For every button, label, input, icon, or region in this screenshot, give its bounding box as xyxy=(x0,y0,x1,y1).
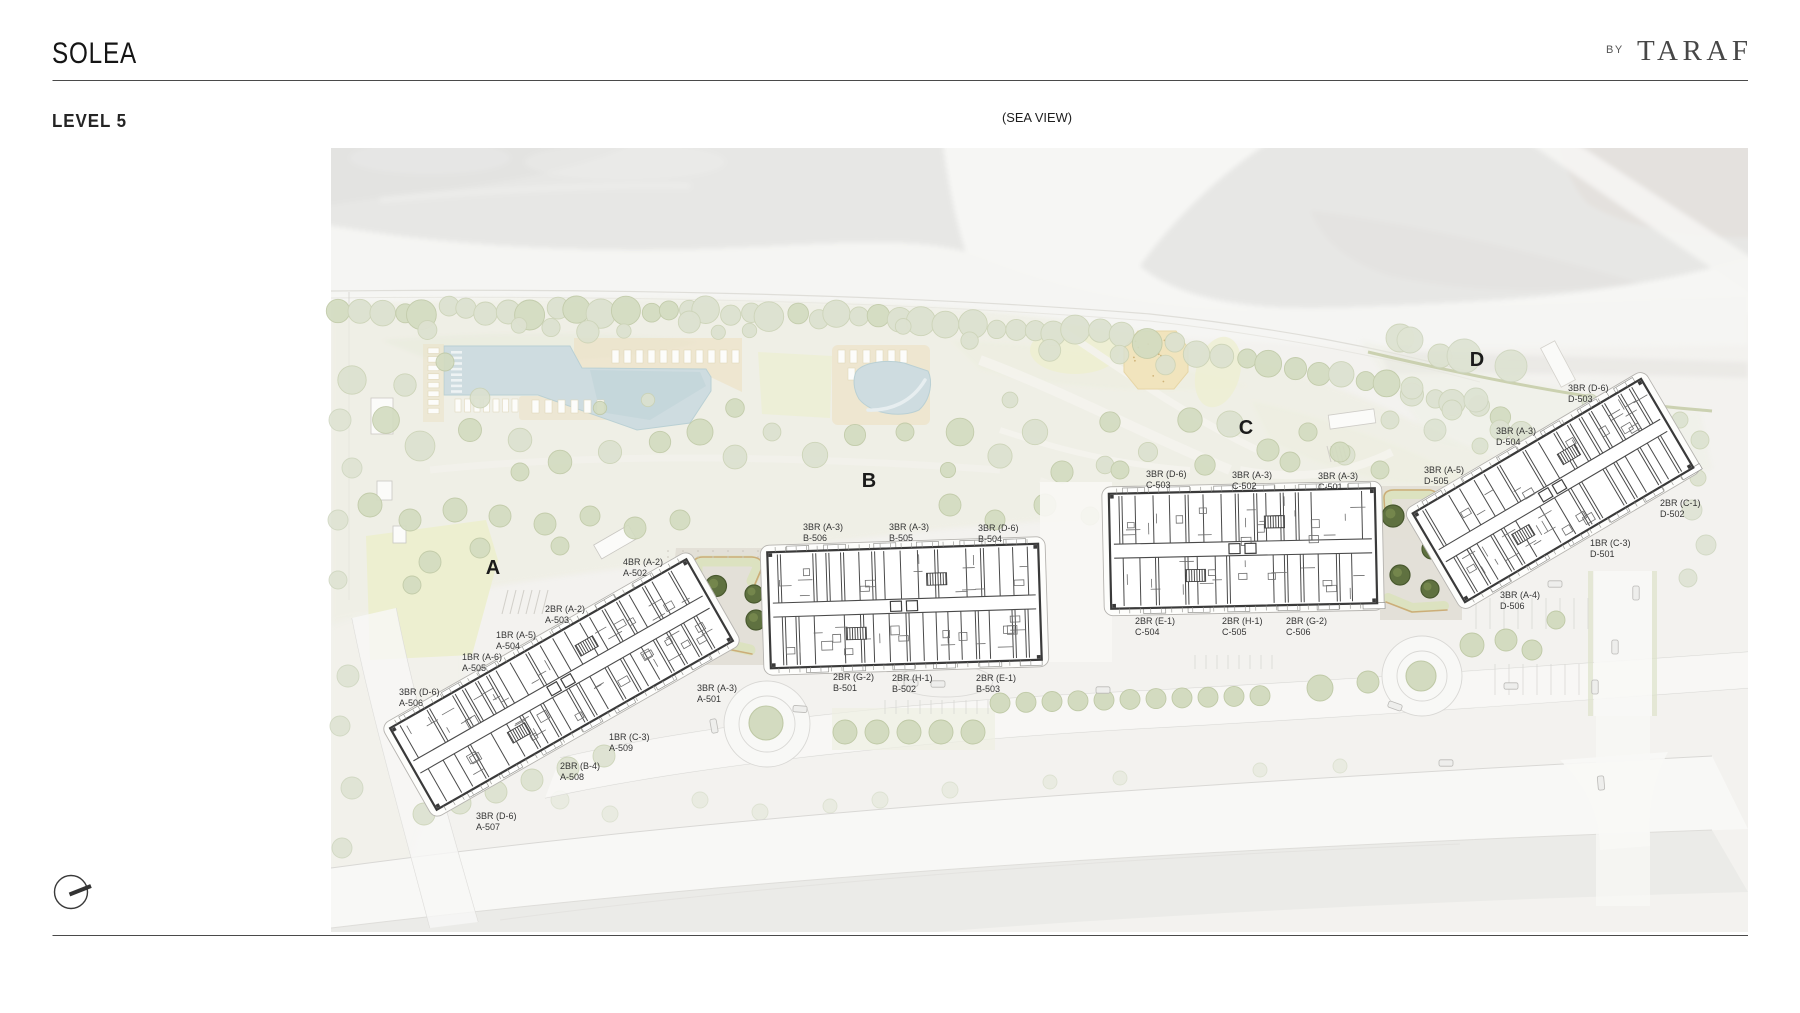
svg-text:3BR (D-6): 3BR (D-6) xyxy=(1568,383,1609,393)
svg-text:1BR (A-5): 1BR (A-5) xyxy=(496,630,536,640)
svg-text:A-507: A-507 xyxy=(476,822,500,832)
svg-text:SOLEA: SOLEA xyxy=(52,37,137,70)
svg-text:3BR (A-5): 3BR (A-5) xyxy=(1424,465,1464,475)
svg-text:3BR (D-6): 3BR (D-6) xyxy=(399,687,440,697)
svg-text:3BR (D-6): 3BR (D-6) xyxy=(978,523,1019,533)
svg-text:B-505: B-505 xyxy=(889,533,913,543)
svg-text:B-501: B-501 xyxy=(833,683,857,693)
svg-text:D-503: D-503 xyxy=(1568,394,1593,404)
svg-text:B-506: B-506 xyxy=(803,533,827,543)
svg-text:BY: BY xyxy=(1606,44,1624,56)
svg-text:2BR (C-1): 2BR (C-1) xyxy=(1660,498,1701,508)
svg-text:LEVEL 5: LEVEL 5 xyxy=(52,111,127,131)
svg-text:3BR (A-3): 3BR (A-3) xyxy=(1318,471,1358,481)
svg-text:C-501: C-501 xyxy=(1318,482,1343,492)
svg-text:3BR (A-4): 3BR (A-4) xyxy=(1500,590,1540,600)
svg-text:A-506: A-506 xyxy=(399,698,423,708)
svg-text:A: A xyxy=(486,557,500,579)
svg-text:D: D xyxy=(1470,349,1484,371)
svg-text:2BR (B-4): 2BR (B-4) xyxy=(560,761,600,771)
svg-text:1BR (A-6): 1BR (A-6) xyxy=(462,652,502,662)
svg-text:C-503: C-503 xyxy=(1146,480,1171,490)
svg-text:3BR (A-3): 3BR (A-3) xyxy=(889,522,929,532)
svg-text:3BR (D-6): 3BR (D-6) xyxy=(1146,469,1187,479)
svg-text:D-504: D-504 xyxy=(1496,437,1521,447)
svg-text:A-503: A-503 xyxy=(545,615,569,625)
svg-text:3BR (A-3): 3BR (A-3) xyxy=(1232,470,1272,480)
svg-text:3BR (A-3): 3BR (A-3) xyxy=(1496,426,1536,436)
svg-text:C-504: C-504 xyxy=(1135,627,1160,637)
svg-text:C-502: C-502 xyxy=(1232,481,1257,491)
svg-text:1BR (C-3): 1BR (C-3) xyxy=(609,732,650,742)
svg-text:A-502: A-502 xyxy=(623,568,647,578)
svg-text:A-501: A-501 xyxy=(697,694,721,704)
svg-text:D-505: D-505 xyxy=(1424,476,1449,486)
svg-text:2BR (E-1): 2BR (E-1) xyxy=(1135,616,1175,626)
svg-text:B-502: B-502 xyxy=(892,684,916,694)
svg-text:3BR (A-3): 3BR (A-3) xyxy=(697,683,737,693)
svg-text:C-506: C-506 xyxy=(1286,627,1311,637)
svg-text:A-508: A-508 xyxy=(560,772,584,782)
svg-text:D-506: D-506 xyxy=(1500,601,1525,611)
svg-text:2BR (G-2): 2BR (G-2) xyxy=(1286,616,1327,626)
svg-text:3BR (A-3): 3BR (A-3) xyxy=(803,522,843,532)
svg-text:3BR (D-6): 3BR (D-6) xyxy=(476,811,517,821)
svg-text:A-509: A-509 xyxy=(609,743,633,753)
svg-text:TARAF: TARAF xyxy=(1637,35,1748,67)
svg-text:B: B xyxy=(862,470,876,492)
svg-text:C: C xyxy=(1239,417,1253,439)
svg-text:B-504: B-504 xyxy=(978,534,1002,544)
svg-text:A-504: A-504 xyxy=(496,641,520,651)
svg-text:2BR (G-2): 2BR (G-2) xyxy=(833,672,874,682)
svg-text:C-505: C-505 xyxy=(1222,627,1247,637)
svg-text:4BR (A-2): 4BR (A-2) xyxy=(623,557,663,567)
svg-text:A-505: A-505 xyxy=(462,663,486,673)
svg-text:B-503: B-503 xyxy=(976,684,1000,694)
svg-text:2BR (H-1): 2BR (H-1) xyxy=(892,673,933,683)
svg-text:D-501: D-501 xyxy=(1590,549,1615,559)
svg-text:(SEA VIEW): (SEA VIEW) xyxy=(1002,111,1072,125)
svg-text:1BR (C-3): 1BR (C-3) xyxy=(1590,538,1631,548)
svg-text:2BR (E-1): 2BR (E-1) xyxy=(976,673,1016,683)
svg-text:2BR (H-1): 2BR (H-1) xyxy=(1222,616,1263,626)
svg-text:2BR (A-2): 2BR (A-2) xyxy=(545,604,585,614)
svg-text:D-502: D-502 xyxy=(1660,509,1685,519)
